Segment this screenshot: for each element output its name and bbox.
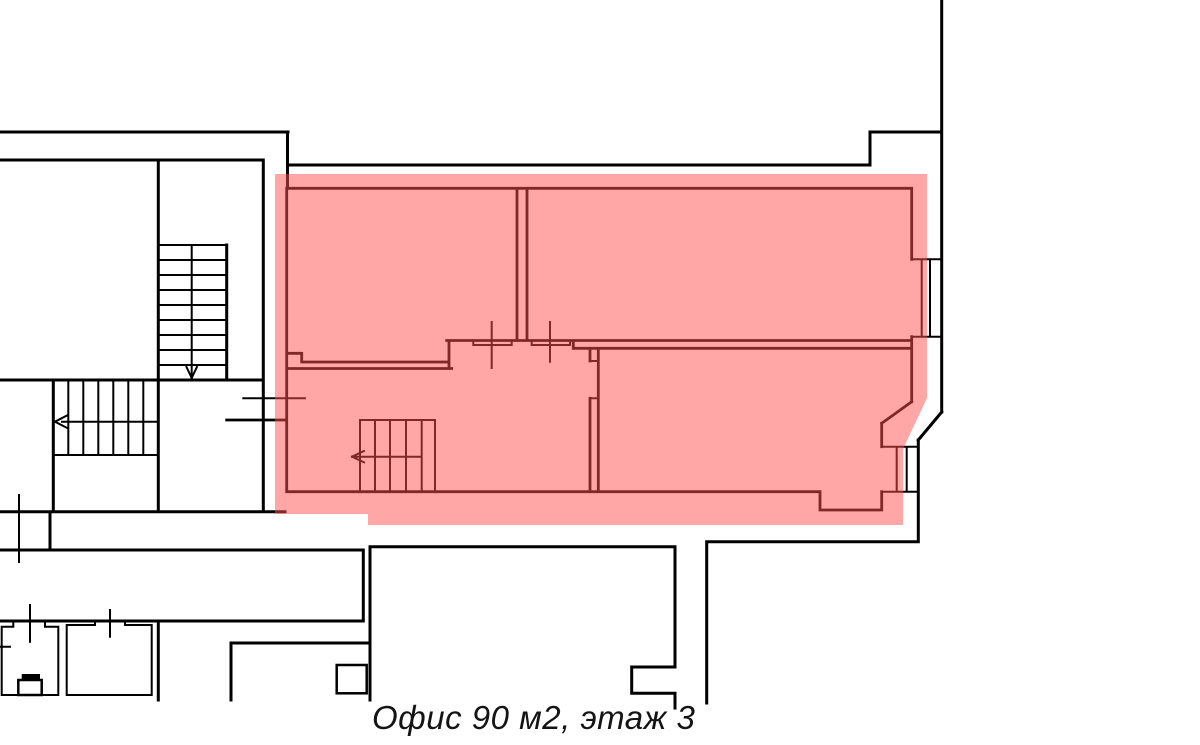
caption: Офис 90 м2, этаж 3 xyxy=(372,700,695,736)
floorplan-svg xyxy=(0,0,1200,745)
floorplan-page: Офис 90 м2, этаж 3 xyxy=(0,0,1200,745)
office-highlight xyxy=(275,174,927,525)
toilet-bowl xyxy=(18,680,41,695)
column-block xyxy=(337,665,367,693)
